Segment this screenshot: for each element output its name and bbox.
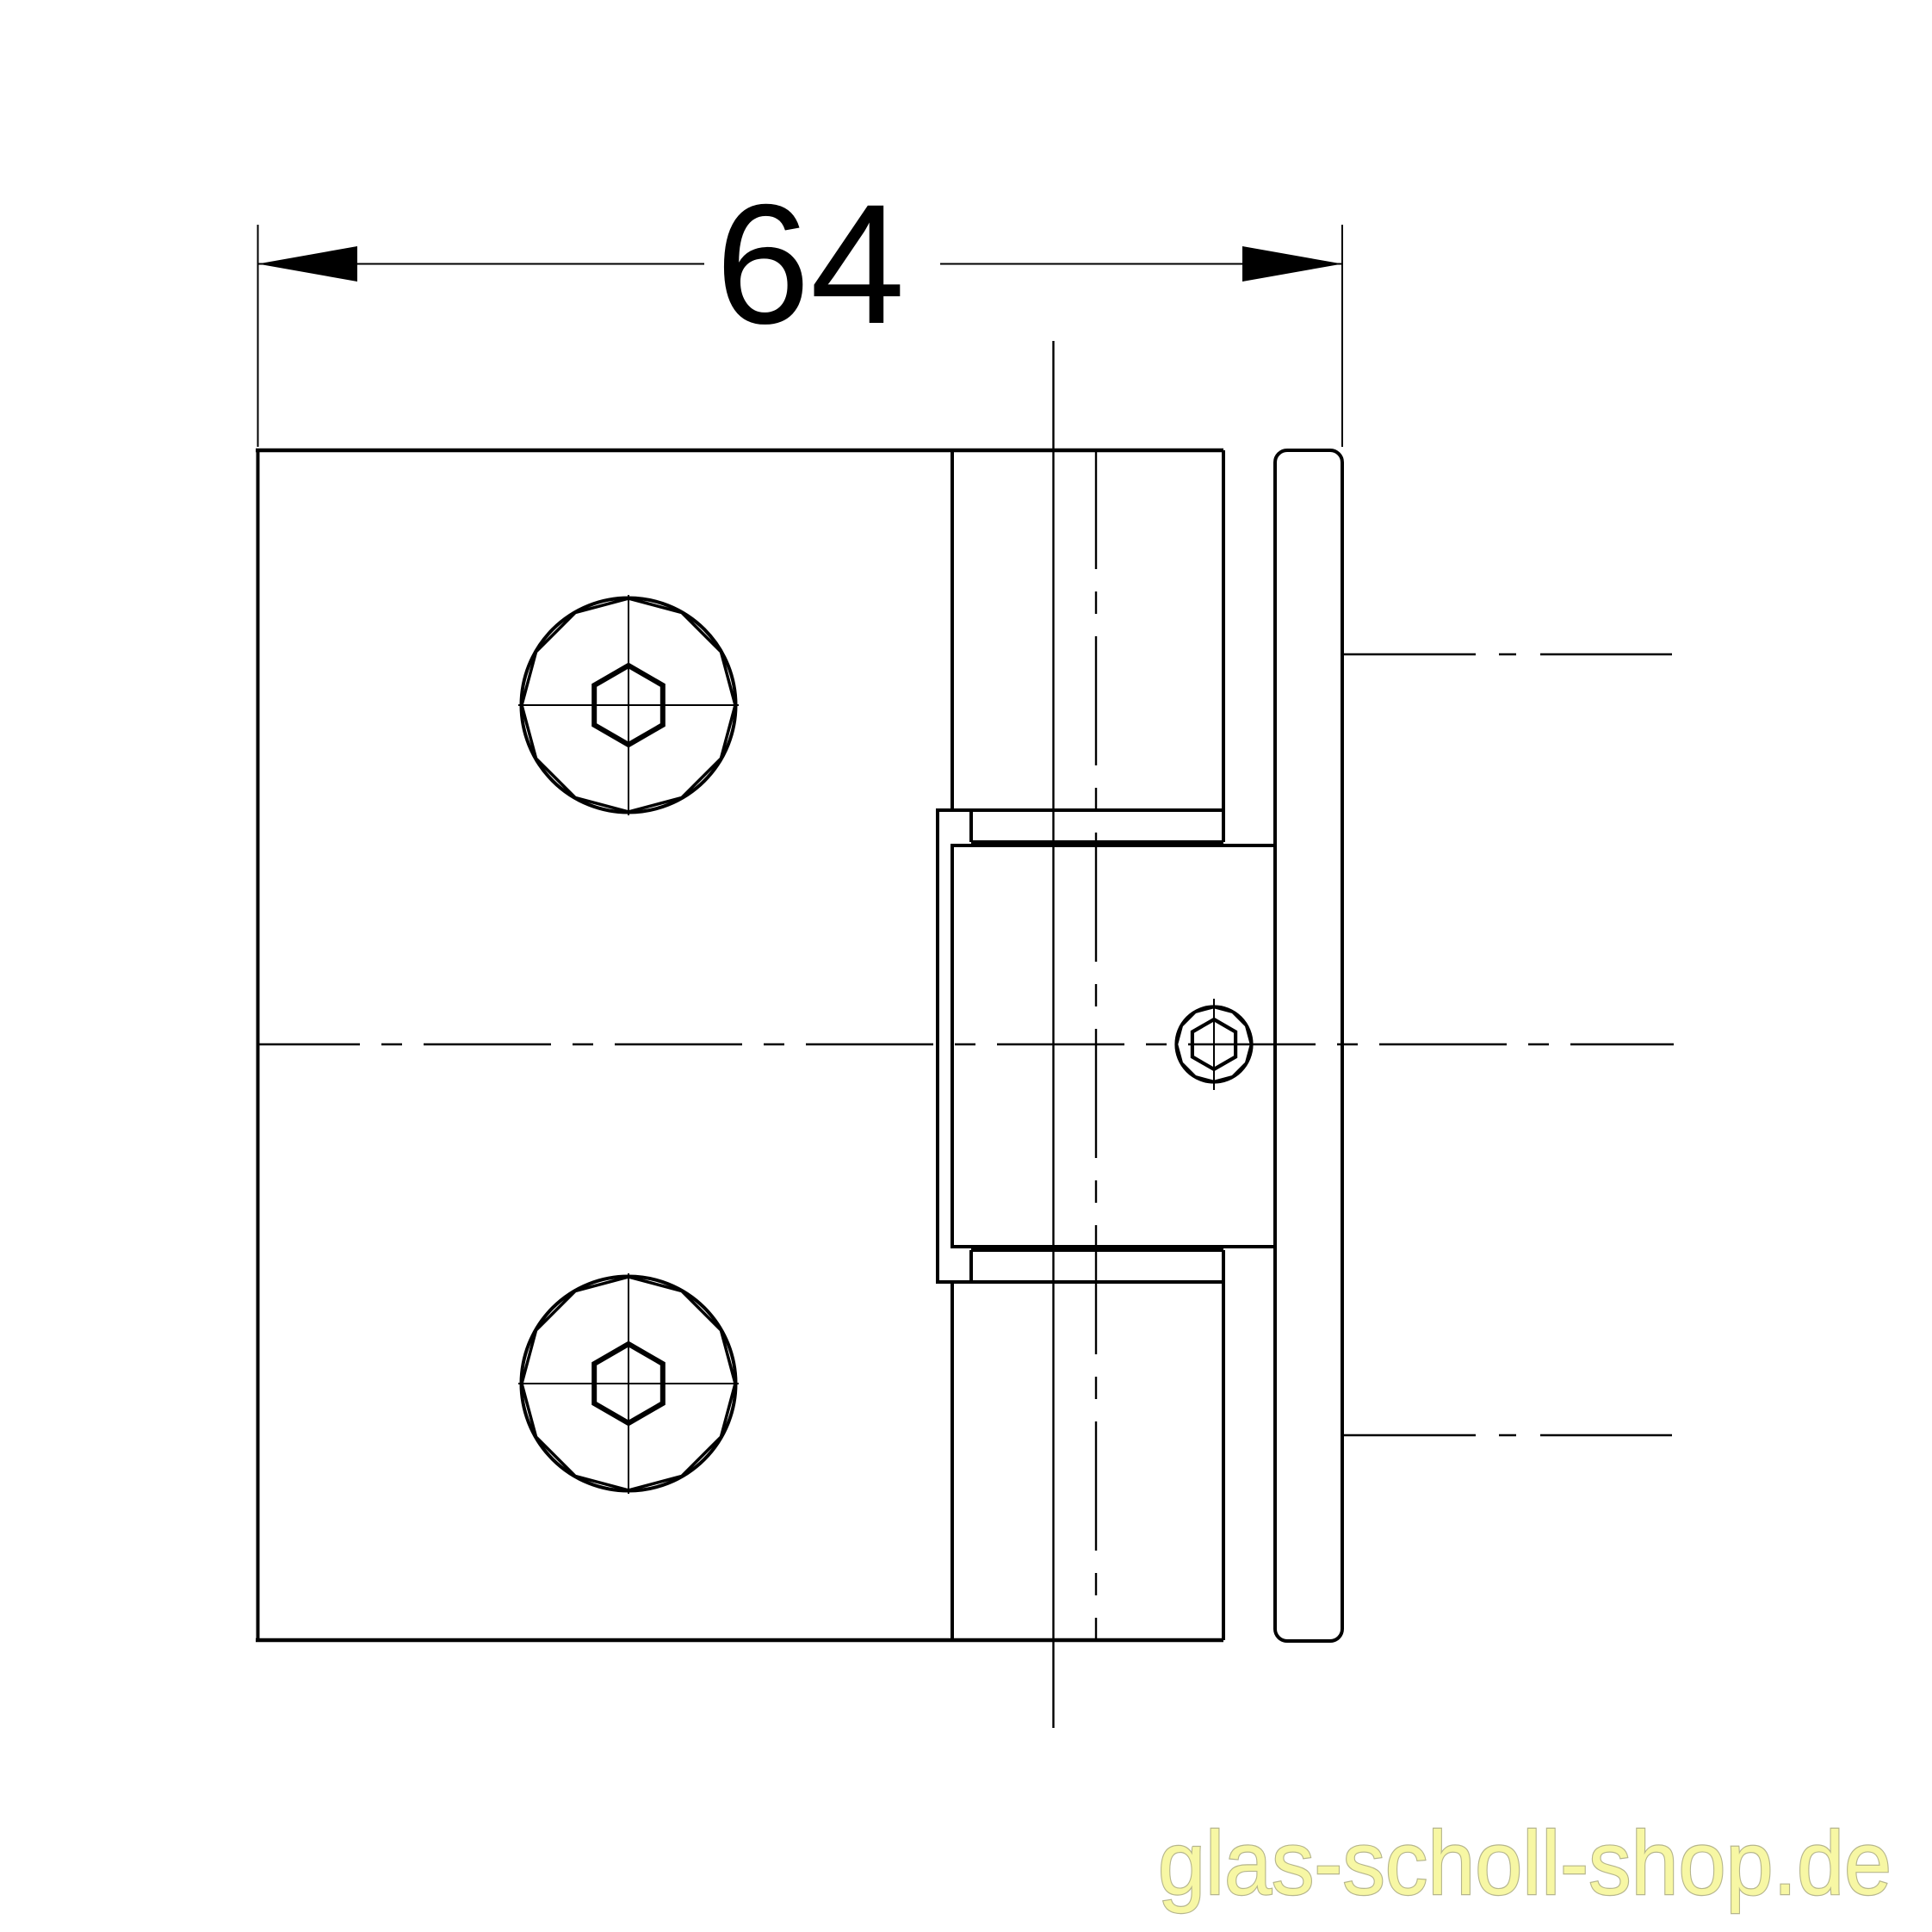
svg-text:glas-scholl-shop.de: glas-scholl-shop.de	[1158, 1813, 1892, 1914]
svg-text:64: 64	[715, 169, 905, 359]
